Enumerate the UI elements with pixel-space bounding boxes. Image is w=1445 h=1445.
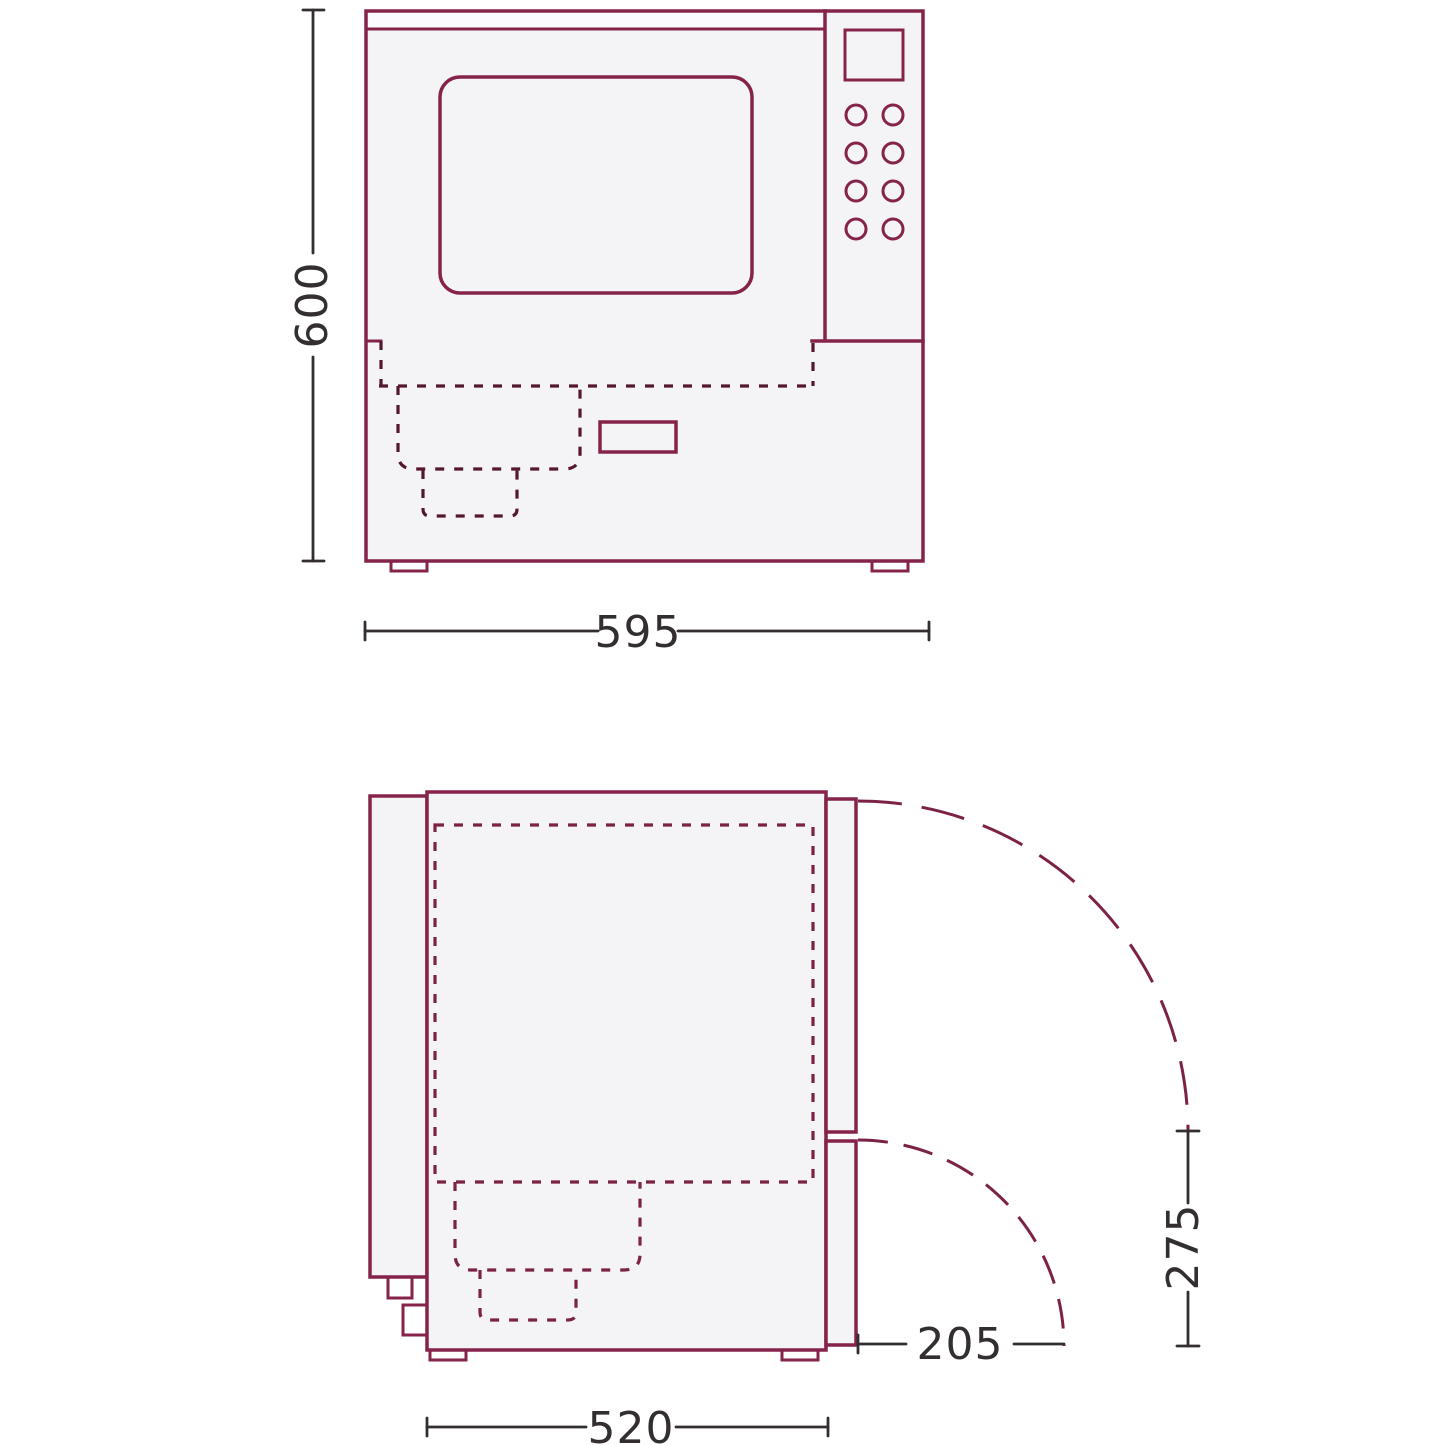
front-foot-left (391, 561, 427, 571)
front-foot-right (872, 561, 908, 571)
side-body-outline (427, 792, 826, 1350)
side-rear-panel (370, 796, 427, 1277)
dim-door-swing-upper: 275 (1158, 1131, 1209, 1346)
front-top-strip (368, 13, 823, 28)
door-lower-section (826, 1141, 856, 1345)
side-view (370, 792, 1188, 1360)
dim-label-depth: 520 (588, 1403, 675, 1445)
dim-label-door-swing-lower: 205 (917, 1319, 1004, 1370)
side-foot-right (782, 1350, 818, 1360)
door-swing-arc-lower (858, 1140, 1064, 1346)
door-upper-section (826, 799, 856, 1132)
dim-door-swing-lower: 205 (858, 1319, 1064, 1370)
dim-label-door-swing-upper: 275 (1158, 1204, 1209, 1291)
appliance-dimension-drawing: 600 595 275 (0, 0, 1445, 1445)
dimension-diagram-svg: 600 595 275 (0, 0, 1445, 1445)
side-foot-left (430, 1350, 466, 1360)
front-body-outline (366, 11, 923, 561)
front-view (366, 11, 923, 571)
side-rear-tab-lower (403, 1305, 427, 1335)
side-rear-tab-upper (388, 1277, 412, 1298)
dim-front-width: 595 (365, 607, 929, 658)
dim-side-depth: 520 (427, 1403, 828, 1445)
dim-label-height: 600 (287, 262, 338, 349)
door-swing-arc-upper (858, 801, 1188, 1131)
dim-label-width: 595 (595, 607, 682, 658)
dim-front-height: 600 (287, 10, 338, 561)
